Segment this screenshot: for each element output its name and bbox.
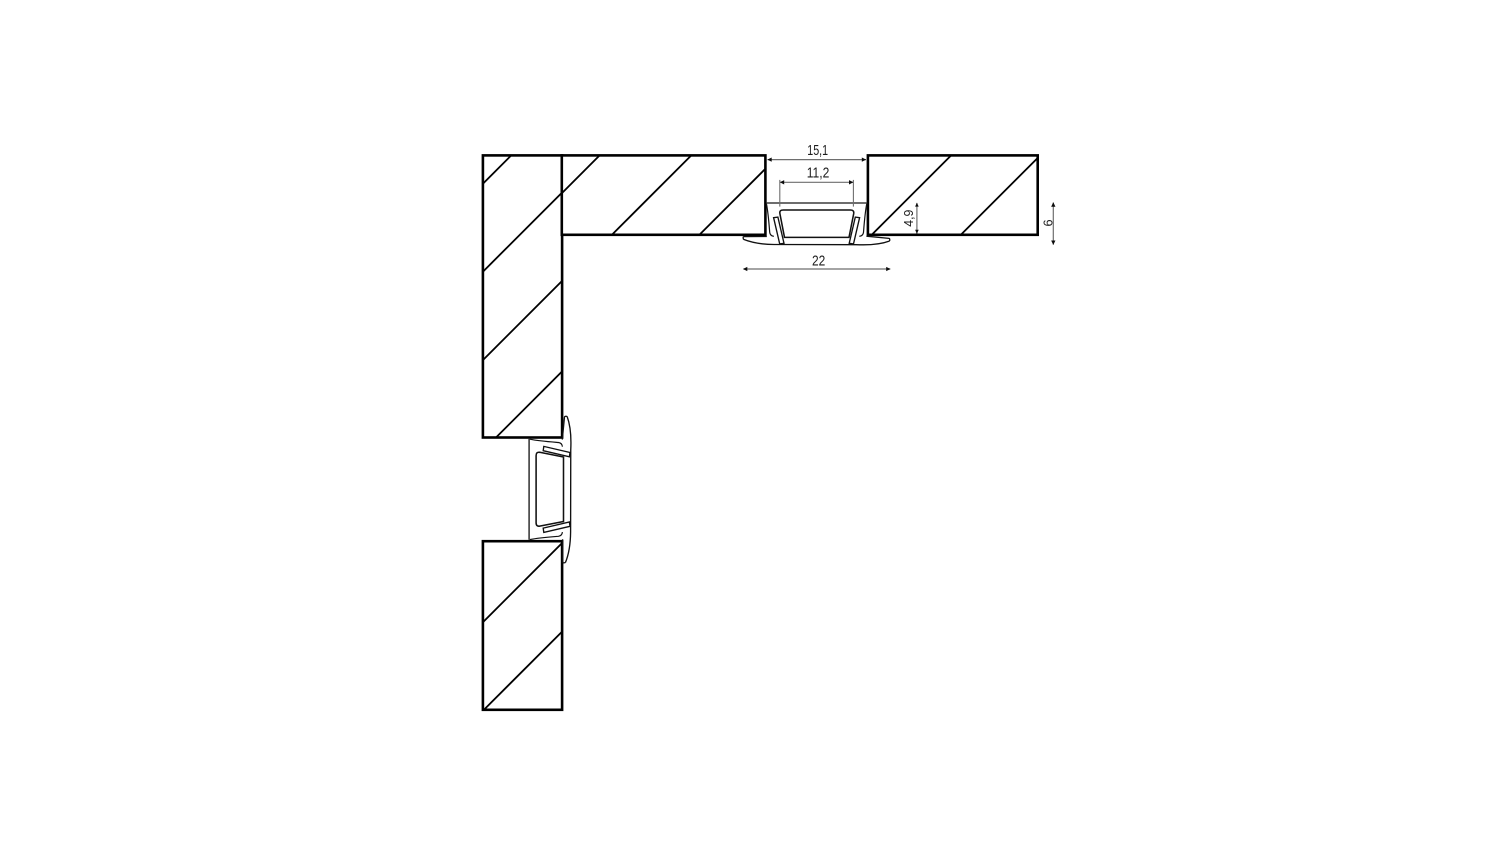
- svg-text:15,1: 15,1: [807, 143, 828, 159]
- svg-text:6: 6: [1040, 219, 1055, 226]
- svg-text:4,9: 4,9: [901, 210, 916, 227]
- svg-text:22: 22: [812, 253, 825, 269]
- svg-text:11,2: 11,2: [807, 165, 830, 181]
